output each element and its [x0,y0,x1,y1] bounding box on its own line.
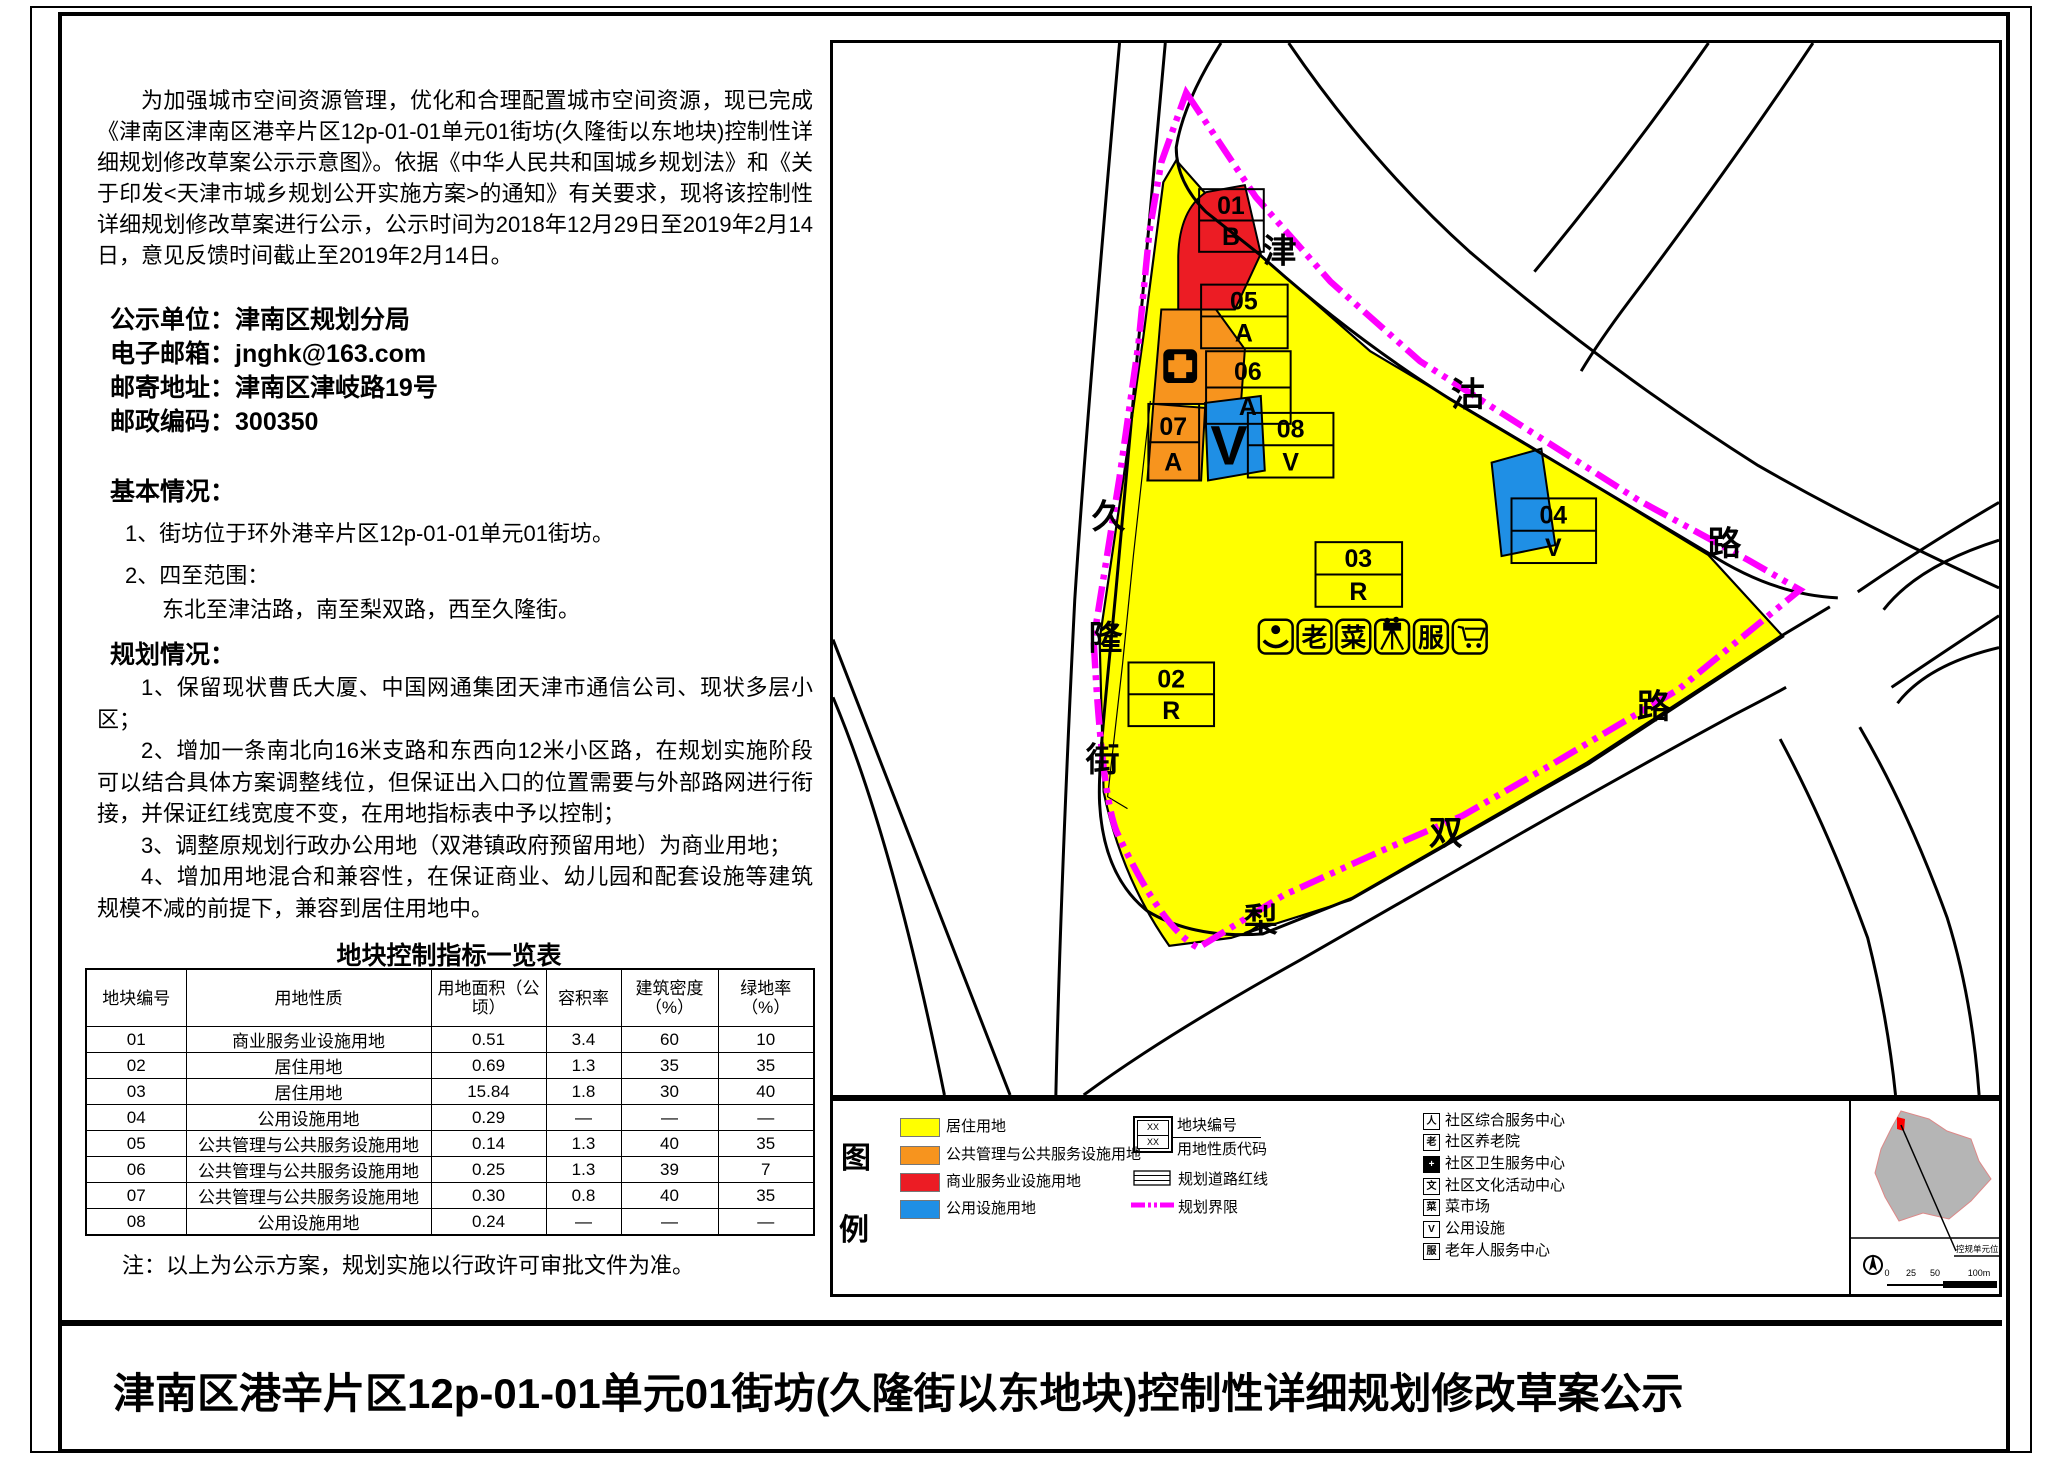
elderly-service-label: 老年人服务中心 [1445,1242,1550,1260]
contact-postcode: 邮政编码：300350 [110,405,438,439]
legend: 图 例 居住用地 公共管理与公共服务设施用地 商业服务业设施用地 公用设施用地 … [830,1098,2002,1297]
svg-text:08: 08 [1277,416,1305,444]
community-service-icon: 人 [1423,1113,1440,1130]
svg-text:06: 06 [1234,358,1262,386]
road-redline-label: 规划道路红线 [1178,1171,1268,1189]
plot-control-table: 地块编号 用地性质 用地面积（公顷） 容积率 建筑密度（%） 绿地率（%） 01… [85,968,815,1236]
svg-text:100m: 100m [1968,1268,1991,1278]
utility-facility-label: 公用设施 [1445,1220,1505,1238]
planning-item-2: 2、增加一条南北向16米支路和东西向12米小区路，在规划实施阶段可以结合具体方案… [97,735,813,830]
scale-bar: 0 25 50 100m [1884,1268,1997,1288]
planning-section-title: 规划情况： [110,635,235,671]
svg-text:07: 07 [1159,413,1187,441]
table-note: 注：以上为公示方案，规划实施以行政许可审批文件为准。 [122,1248,694,1280]
planning-notice-page: 为加强城市空间资源管理，优化和合理配置城市空间资源，现已完成《津南区津南区港辛片… [0,0,2060,1457]
elderly-care-icon: 老 [1302,624,1328,653]
location-inset-svg: 控规单元位置 0 25 50 100m [1851,1101,2001,1294]
health-center-icon [1163,349,1197,383]
market-icon: 菜 [1339,624,1366,653]
plot-code-fraction-line [1173,1137,1261,1138]
plot-code-symbol-inner: XX XX [1137,1120,1169,1149]
svg-text:A: A [1235,319,1253,347]
road-label-lu1: 路 [1708,525,1742,563]
road-label-lu2: 路 [1637,688,1671,726]
svg-text:B: B [1222,223,1240,251]
contact-block: 公示单位：津南区规划分局 电子邮箱：jnghk@163.com 邮寄地址：津南区… [110,303,438,439]
utility-swatch [900,1200,940,1219]
unit-highlight [1897,1117,1905,1131]
boundary-label: 规划界限 [1178,1199,1238,1217]
basic-item-1: 1、街坊位于环外港辛片区12p-01-01单元01街坊。 [125,516,614,548]
health-center-label: 社区卫生服务中心 [1445,1155,1565,1173]
residential-swatch [900,1118,940,1137]
svg-text:R: R [1349,578,1367,606]
table-row: 01商业服务业设施用地0.513.46010 [86,1027,814,1053]
district-silhouette [1875,1111,1991,1221]
utility-label: 公用设施用地 [946,1200,1036,1218]
table-row: 05公共管理与公共服务设施用地0.141.34035 [86,1131,814,1157]
road-label-li: 梨 [1244,902,1278,940]
svg-text:05: 05 [1230,287,1258,315]
planning-items: 1、保留现状曹氏大厦、中国网通集团天津市通信公司、现状多层小区； 2、增加一条南… [97,672,813,924]
svg-text:02: 02 [1157,665,1185,693]
public-mgmt-swatch [900,1146,940,1165]
nursing-home-label: 社区养老院 [1445,1133,1520,1151]
table-row: 04公用设施用地0.29——— [86,1105,814,1131]
table-row: 03居住用地15.841.83040 [86,1079,814,1105]
service-center-icon: 服 [1418,625,1444,653]
svg-text:03: 03 [1344,545,1372,573]
north-arrow-icon [1864,1254,1882,1274]
road-label-long: 隆 [1089,620,1124,658]
col-header-density: 建筑密度（%） [621,969,718,1027]
commercial-label: 商业服务业设施用地 [946,1173,1081,1191]
svg-text:A: A [1164,449,1182,477]
contact-unit: 公示单位：津南区规划分局 [110,303,438,337]
commercial-swatch [900,1173,940,1192]
col-header-area: 用地面积（公顷） [431,969,546,1027]
public-mgmt-label: 公共管理与公共服务设施用地 [946,1146,1141,1164]
culture-center-icon: 文 [1423,1178,1440,1195]
road-label-jie: 街 [1085,741,1120,779]
col-header-green: 绿地率（%） [718,969,814,1027]
svg-text:50: 50 [1930,1268,1940,1278]
elderly-service-icon: 服 [1423,1243,1440,1260]
nursing-home-icon: 老 [1423,1134,1440,1151]
basic-item-2-detail: 东北至津沽路，南至梨双路，西至久隆街。 [162,592,580,624]
col-header-plot-no: 地块编号 [86,969,186,1027]
table-row: 06公共管理与公共服务设施用地0.251.3397 [86,1157,814,1183]
basic-section-title: 基本情况： [110,472,235,508]
intro-paragraph: 为加强城市空间资源管理，优化和合理配置城市空间资源，现已完成《津南区津南区港辛片… [97,85,813,271]
culture-center-label: 社区文化活动中心 [1445,1177,1565,1195]
contact-email: 电子邮箱：jnghk@163.com [110,337,438,371]
planning-item-1: 1、保留现状曹氏大厦、中国网通集团天津市通信公司、现状多层小区； [97,672,813,735]
community-service-icon [1271,625,1280,634]
road-label-shuang: 双 [1429,814,1463,852]
col-header-landuse: 用地性质 [186,969,431,1027]
table-row: 02居住用地0.691.33535 [86,1053,814,1079]
col-header-far: 容积率 [546,969,621,1027]
road-label-jin: 津 [1263,233,1297,271]
contact-address: 邮寄地址：津南区津岐路19号 [110,371,438,405]
road-redline-symbol [1133,1170,1171,1186]
road-label-jiu: 久 [1092,498,1126,536]
planning-item-4: 4、增加用地混合和兼容性，在保证商业、幼儿园和配套设施等建筑规模不减的前提下，兼… [97,861,813,924]
plan-map: 津 沽 路 双 路 梨 久 隆 街 V [830,40,2002,1098]
market-label: 菜市场 [1445,1198,1490,1216]
svg-text:V: V [1545,534,1562,562]
plan-map-svg: 津 沽 路 双 路 梨 久 隆 街 V [833,43,1999,1095]
market-icon: 菜 [1423,1199,1440,1216]
svg-text:V: V [1282,449,1299,477]
svg-text:04: 04 [1539,501,1567,529]
svg-text:01: 01 [1217,192,1245,220]
location-inset: 控规单元位置 0 25 50 100m [1849,1101,2001,1294]
legend-title-top: 图 [841,1133,871,1177]
table-row: 07公共管理与公共服务设施用地0.300.84035 [86,1183,814,1209]
health-center-icon: + [1423,1156,1440,1173]
basic-item-2: 2、四至范围： [125,558,269,590]
plot-code-symbol: XX XX [1133,1116,1173,1153]
table-row: 08公用设施用地0.24——— [86,1209,814,1236]
plot-code-label-bottom: 用地性质代码 [1177,1141,1267,1159]
legend-title-bottom: 例 [839,1205,869,1249]
svg-text:25: 25 [1906,1268,1916,1278]
svg-text:0: 0 [1884,1268,1889,1278]
page-title: 津南区港辛片区12p-01-01单元01街坊(久隆街以东地块)控制性详细规划修改… [113,1360,1683,1421]
table-title: 地块控制指标一览表 [85,936,813,972]
inset-label: 控规单元位置 [1956,1244,2001,1254]
planning-item-3: 3、调整原规划行政办公用地（双港镇政府预留用地）为商业用地； [97,830,813,862]
plot-code-label-top: 地块编号 [1177,1117,1237,1135]
road-label-gu: 沽 [1451,376,1485,414]
boundary-symbol [1131,1199,1175,1211]
svg-text:R: R [1162,697,1180,725]
table-header-row: 地块编号 用地性质 用地面积（公顷） 容积率 建筑密度（%） 绿地率（%） [86,969,814,1027]
residential-label: 居住用地 [946,1118,1006,1136]
community-service-label: 社区综合服务中心 [1445,1112,1565,1130]
utility-facility-icon: V [1423,1221,1440,1238]
title-bar: 津南区港辛片区12p-01-01单元01街坊(久隆街以东地块)控制性详细规划修改… [58,1320,2002,1451]
